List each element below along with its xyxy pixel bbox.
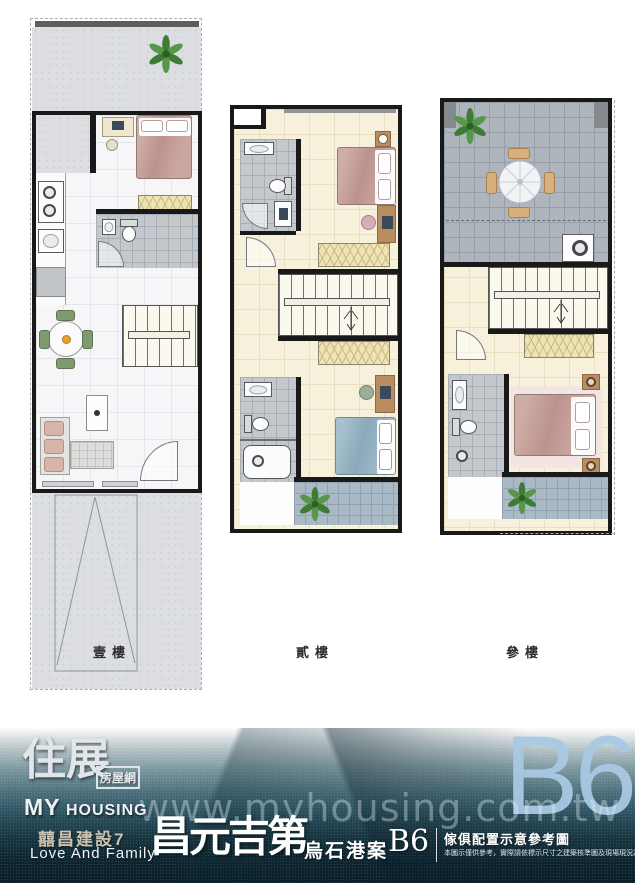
stair-direction-icon <box>338 307 364 333</box>
drain-icon <box>456 450 468 462</box>
chair-icon <box>56 310 75 321</box>
sink-icon <box>244 142 274 155</box>
rear-hall <box>240 482 294 525</box>
door-arc-icon <box>456 330 486 360</box>
logo-my: MY <box>24 794 61 820</box>
note-title: 傢俱配置示意參考圖 <box>444 829 570 848</box>
window <box>42 481 94 487</box>
kitchen-sink-icon <box>38 229 64 253</box>
refrigerator-icon <box>36 267 66 297</box>
divider <box>436 828 437 862</box>
food-plate-icon <box>62 335 71 344</box>
logo-housing: HOUSING <box>66 802 148 819</box>
double-bed-icon <box>337 147 396 205</box>
wall <box>90 115 96 173</box>
plant-icon <box>147 35 185 73</box>
sofa-cushion <box>44 421 64 436</box>
stair-rail <box>494 291 600 299</box>
sink-icon <box>452 380 467 410</box>
floor-label-2: 貳樓 <box>275 642 355 661</box>
burner-icon <box>43 186 56 199</box>
wall <box>296 377 301 483</box>
window <box>102 481 138 487</box>
cabinet-item-icon <box>279 208 288 220</box>
wall <box>296 139 301 231</box>
logo-suffix-text: 房屋網 <box>96 766 140 789</box>
wardrobe-icon <box>318 341 390 365</box>
toilet-icon <box>452 418 476 434</box>
case-name: 烏石港案 <box>304 836 388 863</box>
note-disclaimer: 本圖示僅供參考，實際請依標示尺寸之建築核準圖及現場現況為準。 <box>444 848 635 858</box>
wardrobe-icon <box>318 243 390 267</box>
patio-umbrella-icon <box>496 158 544 206</box>
chair-icon <box>56 358 75 369</box>
laptop-icon <box>380 386 391 399</box>
stair-direction-icon <box>548 300 574 326</box>
toilet-icon <box>268 177 292 193</box>
plant-icon <box>452 108 488 144</box>
lot-boundary-dashed <box>500 533 614 534</box>
decor-circle <box>378 134 388 144</box>
stool <box>106 139 118 151</box>
sink-icon <box>244 382 272 397</box>
floor-label-1: 壹樓 <box>72 642 152 661</box>
sofa-cushion <box>44 439 64 454</box>
floorplan-sheet: 壹樓 貳樓 參樓 B6 www.myhousing.com.tw 住展 房屋網 … <box>0 0 635 883</box>
lot-boundary-dashed <box>614 100 615 535</box>
stair-void <box>234 109 261 125</box>
sofa-cushion <box>44 457 64 472</box>
desk-chair <box>359 385 374 400</box>
logo-suffix: 房屋網 <box>96 766 140 789</box>
lamp-icon <box>586 461 596 471</box>
desk-chair <box>361 215 376 230</box>
double-bed-icon <box>514 394 596 456</box>
builder-slogan: Love And Family <box>30 845 156 862</box>
double-bed-icon <box>136 115 192 179</box>
plant-icon <box>506 482 538 514</box>
patio-chair <box>508 207 530 218</box>
patio-chair <box>544 172 555 194</box>
terrace-divider <box>446 220 606 221</box>
washer-door-icon <box>572 240 588 256</box>
wall <box>240 231 296 235</box>
floor-label-3: 參樓 <box>485 642 565 661</box>
stair-rail <box>284 298 390 306</box>
entry-foyer <box>36 115 90 173</box>
laptop-icon <box>382 216 393 229</box>
wall <box>504 374 509 480</box>
toilet-icon <box>120 219 136 241</box>
window <box>284 109 396 113</box>
table-decor-icon <box>94 410 100 416</box>
entry-door-arc-icon <box>140 441 178 481</box>
desk-item-icon <box>112 121 124 130</box>
toilet-icon <box>244 415 268 431</box>
drain-icon <box>252 455 264 467</box>
floor-plan-3 <box>440 98 612 535</box>
logo-wordmark: MY HOUSING <box>24 794 148 821</box>
bathtub-icon <box>243 445 291 479</box>
wardrobe-icon <box>524 334 594 358</box>
lamp-icon <box>586 377 596 387</box>
rear-hall <box>448 477 502 519</box>
footer-banner: B6 www.myhousing.com.tw 住展 房屋網 MY HOUSIN… <box>0 728 635 883</box>
burner-icon <box>43 204 56 217</box>
sofa-chaise <box>70 441 114 469</box>
floor-plan-2 <box>230 105 402 533</box>
double-bed-icon <box>335 417 396 475</box>
terrace-post <box>594 102 608 128</box>
sink-icon <box>102 219 116 235</box>
floor-plan-1 <box>30 18 202 690</box>
plant-icon <box>298 487 332 521</box>
wall <box>234 125 266 129</box>
chair-icon <box>82 330 93 349</box>
chair-icon <box>39 330 50 349</box>
unit-label: B6 <box>388 824 429 859</box>
stair-rail <box>128 331 190 339</box>
project-name: 昌元吉第 <box>150 816 306 858</box>
building-floor1 <box>32 111 202 493</box>
door-arc-icon <box>246 237 276 267</box>
wall <box>240 439 296 441</box>
